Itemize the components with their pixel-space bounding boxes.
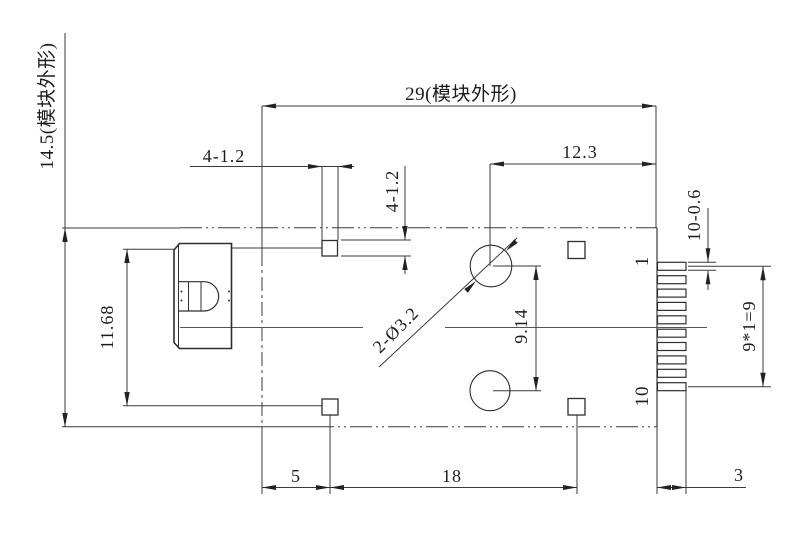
dim-module-height (62, 33, 312, 427)
dim-pad-width-top (190, 164, 354, 240)
pin-10 (658, 383, 687, 391)
pin-1 (658, 262, 687, 270)
pin-9 (658, 369, 687, 377)
module-outline (180, 228, 707, 427)
leader-line (379, 238, 517, 367)
pin-2 (658, 276, 687, 284)
pin-8 (658, 356, 687, 364)
arrowhead (402, 226, 407, 240)
label-hole-spacing: 9.14 (511, 308, 531, 344)
arrowhead (642, 162, 656, 167)
arrowhead (506, 239, 518, 251)
label-pin-length: 3 (734, 465, 744, 485)
arrowhead (316, 485, 330, 490)
arrowhead (262, 104, 276, 109)
pin-comb (658, 262, 687, 390)
label-pin-span: 9*1=9 (739, 300, 759, 351)
label-pad-span: 18 (442, 466, 462, 486)
arrowhead (124, 392, 129, 406)
label-module-height: 14.5(模块外形) (36, 43, 58, 170)
arrowhead (706, 248, 711, 262)
arrowhead (533, 377, 538, 391)
pin-6 (658, 329, 687, 337)
arrowhead (62, 228, 67, 242)
label-pad-offset-left: 5 (291, 466, 301, 486)
pin-3 (658, 289, 687, 297)
arrowhead (262, 485, 276, 490)
pad-bottom-right (568, 399, 585, 416)
label-pad-dim-side: 4-1.2 (382, 170, 402, 213)
label-pin-last: 10 (632, 386, 653, 407)
arrowhead (657, 485, 671, 490)
label-pin-thickness: 10-0.6 (684, 189, 704, 242)
arrowhead (706, 270, 711, 284)
mounting-holes (470, 245, 512, 411)
arrowhead (563, 485, 577, 490)
connector-hidden-dots (181, 291, 231, 302)
arrowhead (124, 249, 129, 263)
usb-connector (174, 244, 232, 349)
arrowhead (308, 164, 322, 169)
arrowhead (330, 485, 344, 490)
hidden-dot (228, 300, 230, 302)
arrowhead (642, 104, 656, 109)
hidden-dot (181, 291, 183, 293)
arrowhead (760, 266, 765, 280)
arrowhead (402, 256, 407, 270)
pin-4 (658, 302, 687, 310)
arrowhead (533, 266, 538, 280)
leader-holes (379, 238, 518, 367)
hidden-dot (228, 291, 230, 293)
label-module-width: 29(模块外形) (405, 83, 517, 105)
dim-hole-offset (490, 162, 656, 267)
arrowhead (338, 164, 352, 169)
connector-tongue-arc (204, 282, 219, 311)
label-connector-height: 11.68 (97, 305, 117, 350)
dimension-labels: 14.5(模块外形) 29(模块外形) 12.3 4-1.2 4-1.2 11.… (36, 43, 759, 486)
arrowhead (62, 413, 67, 427)
technical-drawing: 14.5(模块外形) 29(模块外形) 12.3 4-1.2 4-1.2 11.… (0, 0, 807, 547)
dim-bottom-row (262, 391, 746, 494)
pad-bottom-left (322, 399, 338, 415)
arrowhead (760, 373, 765, 387)
connector-shell (174, 244, 232, 349)
pad-top-left (322, 241, 338, 257)
arrowhead (490, 162, 504, 167)
label-holes: 2-Ø3.2 (369, 303, 423, 357)
label-pad-dim-top: 4-1.2 (203, 146, 246, 166)
hidden-dot (181, 300, 183, 302)
dim-module-width (262, 104, 656, 495)
label-pin-first: 1 (632, 256, 653, 267)
arrowhead (464, 281, 476, 293)
arrowhead (672, 485, 686, 490)
pin-5 (658, 316, 687, 324)
drawing-canvas: 14.5(模块外形) 29(模块外形) 12.3 4-1.2 4-1.2 11.… (0, 0, 807, 547)
pin-7 (658, 343, 687, 351)
label-hole-offset: 12.3 (562, 142, 598, 162)
pad-top-right (568, 242, 585, 259)
